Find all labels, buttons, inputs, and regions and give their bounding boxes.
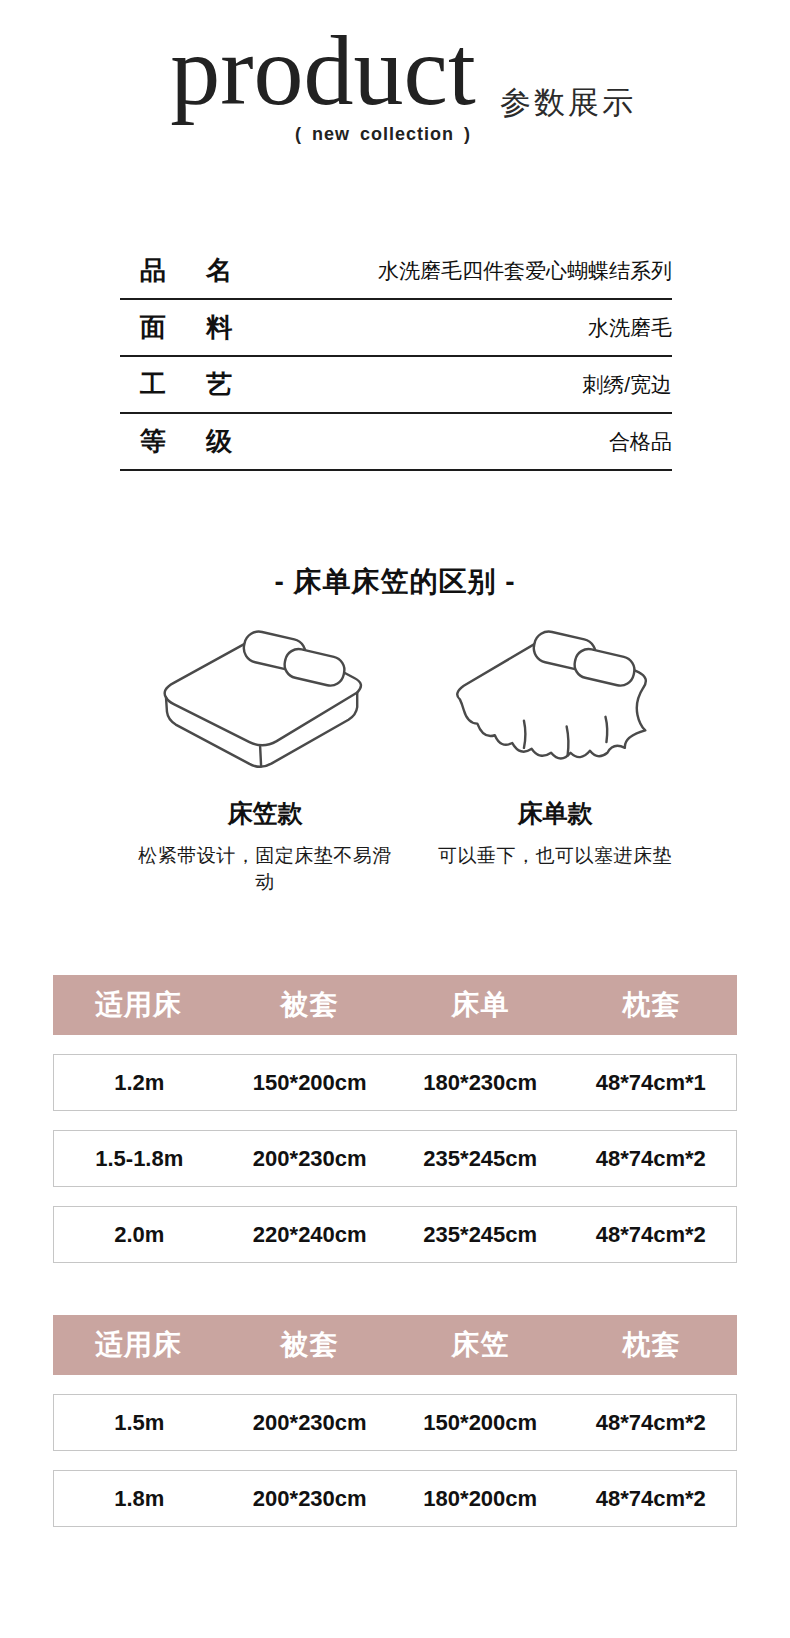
- size-table-header: 适用床 被套 床笠 枕套: [53, 1315, 737, 1375]
- spec-label-char: 名: [206, 253, 232, 288]
- table-row: 1.2m 150*200cm 180*230cm 48*74cm*1: [53, 1054, 737, 1111]
- table-cell: 1.5-1.8m: [54, 1146, 225, 1172]
- spec-label-char: 面: [140, 310, 166, 345]
- column-header: 被套: [224, 1326, 395, 1364]
- spec-row-craft: 工 艺 刺绣/宽边: [120, 357, 672, 414]
- spec-value: 合格品: [609, 428, 672, 456]
- table-cell: 150*200cm: [225, 1070, 396, 1096]
- spec-label-char: 工: [140, 367, 166, 402]
- spec-value: 水洗磨毛: [588, 314, 672, 342]
- column-header: 枕套: [566, 1326, 737, 1364]
- size-table-fitted-sheet: 适用床 被套 床笠 枕套 1.5m 200*230cm 150*200cm 48…: [53, 1315, 737, 1527]
- size-table-flat-sheet: 适用床 被套 床单 枕套 1.2m 150*200cm 180*230cm 48…: [53, 975, 737, 1263]
- table-cell: 235*245cm: [395, 1222, 566, 1248]
- spec-label-char: 级: [206, 424, 232, 459]
- table-cell: 48*74cm*2: [566, 1146, 737, 1172]
- table-cell: 150*200cm: [395, 1410, 566, 1436]
- table-row: 1.8m 200*230cm 180*200cm 48*74cm*2: [53, 1470, 737, 1527]
- spec-value: 水洗磨毛四件套爱心蝴蝶结系列: [378, 257, 672, 285]
- column-header: 床单: [395, 986, 566, 1024]
- table-cell: 220*240cm: [225, 1222, 396, 1248]
- table-cell: 235*245cm: [395, 1146, 566, 1172]
- table-cell: 48*74cm*2: [566, 1222, 737, 1248]
- spec-label: 工 艺: [140, 367, 232, 402]
- table-row: 2.0m 220*240cm 235*245cm 48*74cm*2: [53, 1206, 737, 1263]
- table-cell: 180*200cm: [395, 1486, 566, 1512]
- spec-table: 品 名 水洗磨毛四件套爱心蝴蝶结系列 面 料 水洗磨毛 工 艺 刺绣/宽边 等 …: [120, 243, 672, 471]
- page-side-label: 参数展示: [500, 82, 636, 124]
- page-subtitle: ( new collection ): [253, 124, 513, 145]
- table-cell: 2.0m: [54, 1222, 225, 1248]
- column-header: 被套: [224, 986, 395, 1024]
- table-cell: 200*230cm: [225, 1410, 396, 1436]
- fitted-sheet-name: 床笠款: [130, 797, 400, 830]
- spec-label-char: 艺: [206, 367, 232, 402]
- fitted-sheet-column: 床笠款 松紧带设计，固定床垫不易滑动: [130, 612, 400, 895]
- flat-sheet-name: 床单款: [420, 797, 690, 830]
- table-cell: 200*230cm: [225, 1146, 396, 1172]
- flat-sheet-description: 可以垂下，也可以塞进床垫: [420, 843, 690, 869]
- table-cell: 48*74cm*1: [566, 1070, 737, 1096]
- spec-value: 刺绣/宽边: [582, 371, 672, 399]
- flat-sheet-bed-icon: [435, 612, 675, 777]
- fitted-sheet-description: 松紧带设计，固定床垫不易滑动: [130, 843, 400, 895]
- column-header: 适用床: [53, 986, 224, 1024]
- spec-label-char: 等: [140, 424, 166, 459]
- table-row: 1.5-1.8m 200*230cm 235*245cm 48*74cm*2: [53, 1130, 737, 1187]
- spec-label: 品 名: [140, 253, 232, 288]
- column-header: 适用床: [53, 1326, 224, 1364]
- column-header: 床笠: [395, 1326, 566, 1364]
- spec-label-char: 品: [140, 253, 166, 288]
- difference-section-heading: - 床单床笠的区别 -: [0, 563, 790, 601]
- table-cell: 48*74cm*2: [566, 1486, 737, 1512]
- spec-label: 等 级: [140, 424, 232, 459]
- table-cell: 1.2m: [54, 1070, 225, 1096]
- spec-label: 面 料: [140, 310, 232, 345]
- spec-row-name: 品 名 水洗磨毛四件套爱心蝴蝶结系列: [120, 243, 672, 300]
- table-row: 1.5m 200*230cm 150*200cm 48*74cm*2: [53, 1394, 737, 1451]
- fitted-sheet-bed-icon: [145, 612, 385, 777]
- product-parameter-page: product ( new collection ) 参数展示 品 名 水洗磨毛…: [0, 0, 790, 1638]
- table-cell: 48*74cm*2: [566, 1410, 737, 1436]
- spec-row-fabric: 面 料 水洗磨毛: [120, 300, 672, 357]
- spec-row-grade: 等 级 合格品: [120, 414, 672, 471]
- flat-sheet-column: 床单款 可以垂下，也可以塞进床垫: [420, 612, 690, 869]
- column-header: 枕套: [566, 986, 737, 1024]
- size-table-header: 适用床 被套 床单 枕套: [53, 975, 737, 1035]
- page-title: product: [168, 18, 478, 123]
- table-cell: 1.5m: [54, 1410, 225, 1436]
- table-cell: 1.8m: [54, 1486, 225, 1512]
- table-cell: 180*230cm: [395, 1070, 566, 1096]
- table-cell: 200*230cm: [225, 1486, 396, 1512]
- spec-label-char: 料: [206, 310, 232, 345]
